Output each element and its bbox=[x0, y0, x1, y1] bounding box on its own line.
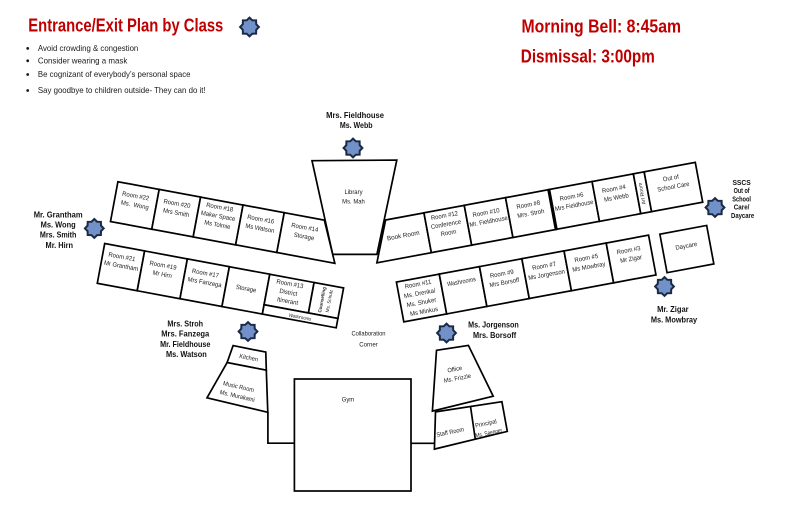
svg-text:Morning Bell: 8:45am: Morning Bell: 8:45am bbox=[522, 15, 682, 36]
svg-text:Say goodbye to children outsid: Say goodbye to children outside- They ca… bbox=[38, 86, 206, 95]
svg-text:Library: Library bbox=[344, 189, 363, 196]
svg-text:Dismissal: 3:00pm: Dismissal: 3:00pm bbox=[521, 45, 655, 66]
svg-text:SSCS Out of School Care/ Dayca: SSCS Out of School Care/ Daycare bbox=[731, 178, 754, 220]
svg-text:Ms. Mah: Ms. Mah bbox=[342, 199, 365, 206]
svg-text:Ms. Jorgenson Mrs. Borsoff: Ms. Jorgenson Mrs. Borsoff bbox=[468, 321, 521, 340]
svg-text:Gym: Gym bbox=[342, 397, 355, 404]
svg-text:Consider wearing a mask: Consider wearing a mask bbox=[38, 56, 128, 65]
svg-text:Mrs. Stroh Mrs. Fanzega Mr. Fi: Mrs. Stroh Mrs. Fanzega Mr. Fieldhouse M… bbox=[160, 320, 213, 360]
svg-text:Entrance/Exit Plan by Class: Entrance/Exit Plan by Class bbox=[28, 15, 223, 36]
svg-text:Collaboration: Collaboration bbox=[352, 331, 387, 338]
svg-text:Avoid crowding & congestion: Avoid crowding & congestion bbox=[38, 44, 139, 53]
svg-text:Corner: Corner bbox=[359, 341, 378, 348]
svg-text:Be cognizant of everybody’s pe: Be cognizant of everybody’s personal spa… bbox=[38, 70, 191, 79]
svg-text:Mr. Zigar Ms. Mowbray: Mr. Zigar Ms. Mowbray bbox=[651, 305, 698, 324]
